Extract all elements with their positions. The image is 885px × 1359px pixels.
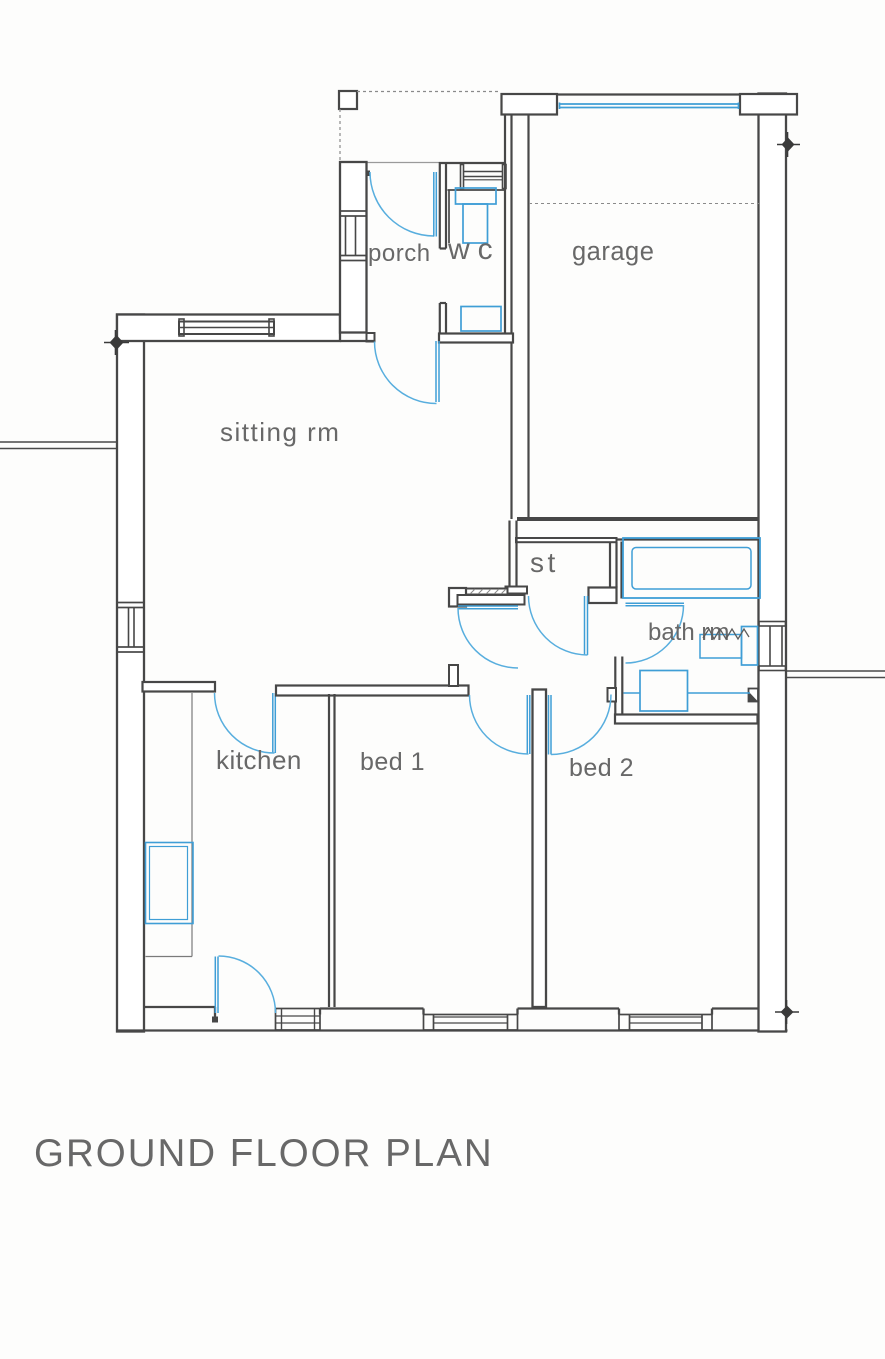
svg-text:bed 1: bed 1 [360, 748, 425, 776]
svg-text:sitting rm: sitting rm [220, 417, 340, 447]
svg-text:garage: garage [572, 238, 654, 266]
svg-text:kitchen: kitchen [216, 745, 302, 775]
svg-text:porch: porch [368, 240, 431, 267]
svg-text:st: st [530, 547, 559, 578]
svg-text:GROUND FLOOR PLAN: GROUND FLOOR PLAN [34, 1132, 494, 1175]
svg-text:bed 2: bed 2 [569, 754, 634, 782]
svg-text:wc: wc [447, 233, 501, 266]
